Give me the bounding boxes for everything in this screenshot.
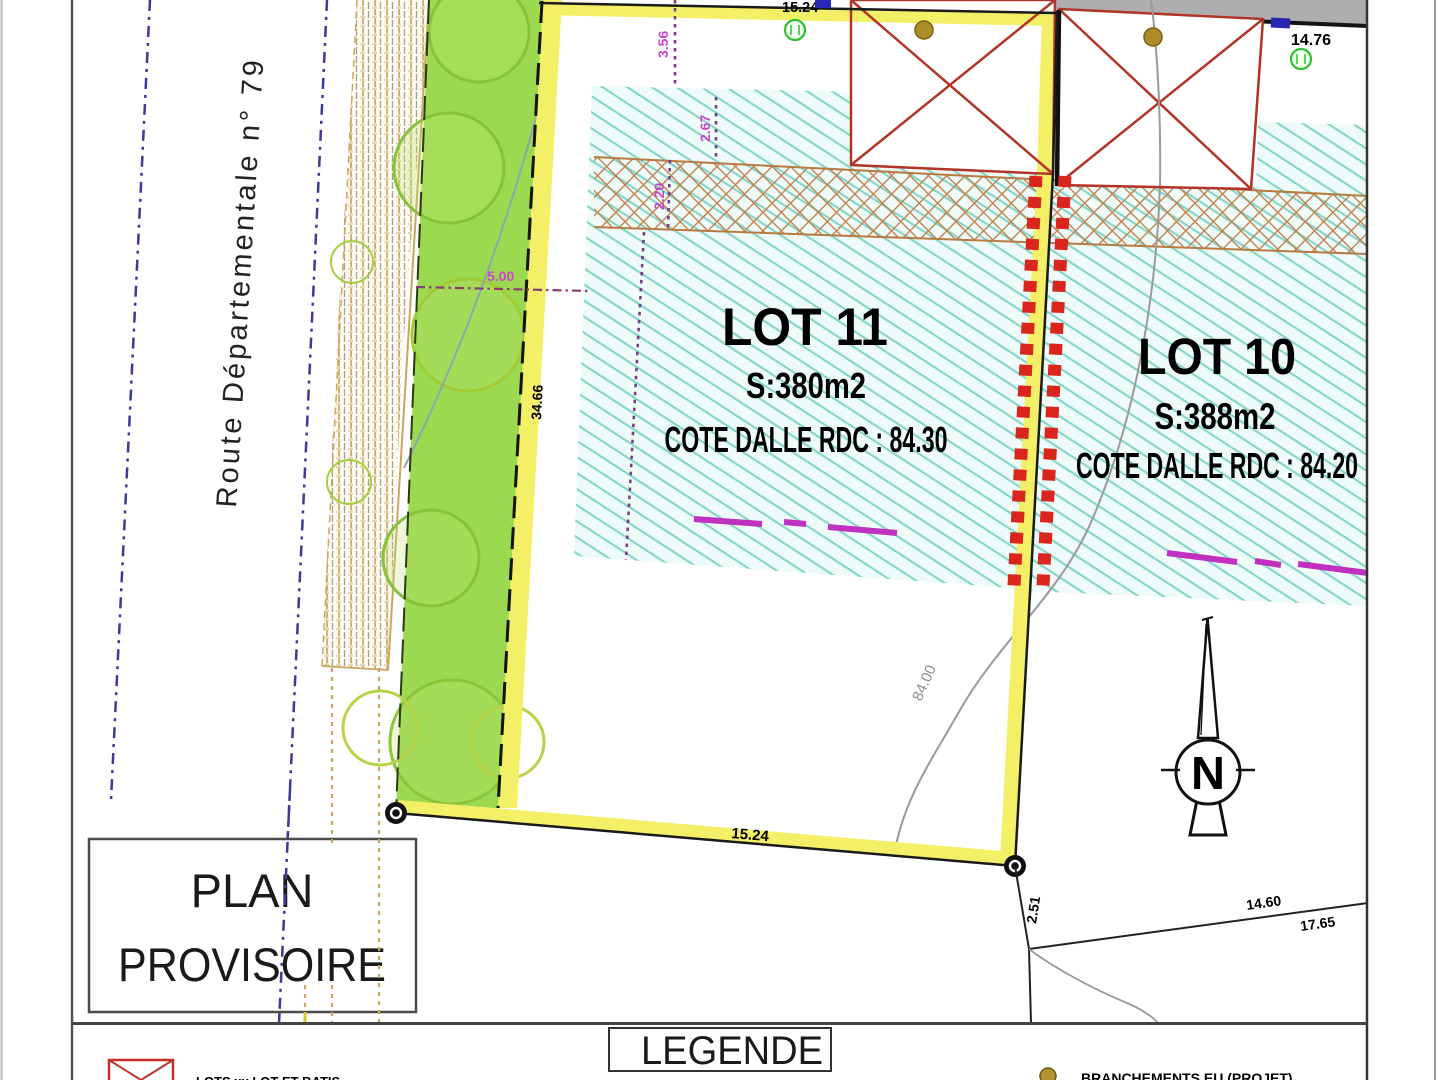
- svg-text:LOT 10: LOT 10: [1138, 328, 1296, 385]
- svg-text:BRANCHEMENTS EU (PROJET): BRANCHEMENTS EU (PROJET): [1081, 1070, 1293, 1080]
- svg-text:3.56: 3.56: [655, 31, 671, 58]
- svg-text:15.24: 15.24: [731, 825, 770, 845]
- svg-text:S:380m2: S:380m2: [746, 365, 866, 406]
- svg-text:PROVISOIRE: PROVISOIRE: [118, 938, 386, 991]
- svg-text:5.00: 5.00: [487, 268, 514, 284]
- svg-text:LOT 11: LOT 11: [722, 298, 888, 357]
- svg-text:N: N: [1191, 747, 1225, 799]
- svg-text:COTE DALLE RDC : 84.20: COTE DALLE RDC : 84.20: [1076, 445, 1358, 486]
- svg-text:2.20: 2.20: [651, 183, 667, 210]
- svg-text:2.67: 2.67: [697, 115, 713, 142]
- svg-text:PLAN: PLAN: [191, 864, 314, 917]
- svg-text:14.76: 14.76: [1291, 32, 1331, 49]
- svg-text:34.66: 34.66: [528, 384, 546, 420]
- svg-text:15.24: 15.24: [782, 0, 818, 16]
- svg-text:S:388m2: S:388m2: [1155, 396, 1276, 437]
- svg-text:LOTS xx LOT ET BATIS: LOTS xx LOT ET BATIS: [196, 1074, 341, 1080]
- svg-text:LEGENDE: LEGENDE: [641, 1029, 823, 1073]
- svg-text:COTE DALLE RDC : 84.30: COTE DALLE RDC : 84.30: [665, 419, 948, 460]
